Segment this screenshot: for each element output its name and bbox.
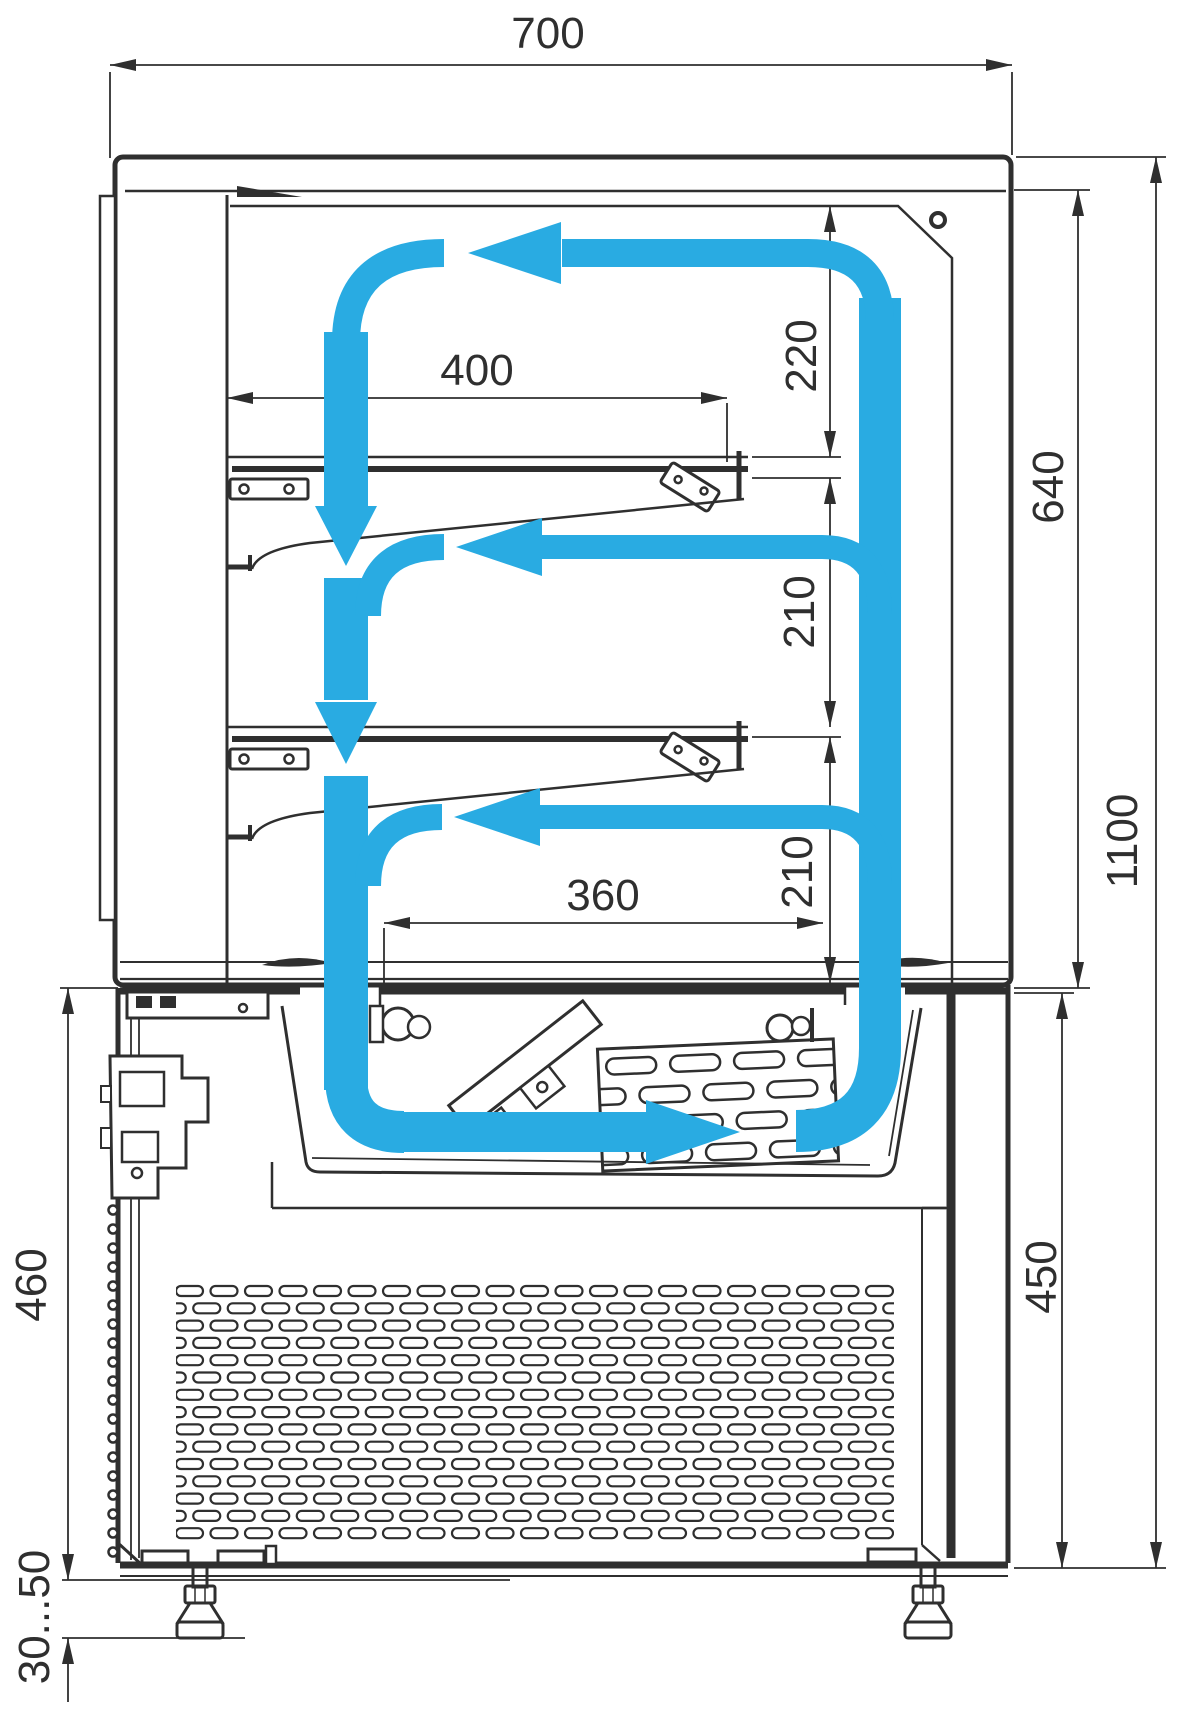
dim-460: 460 [7,988,510,1580]
dim-210-lower: 210 [773,737,836,983]
drawing-canvas: 700 220 210 210 400 [0,0,1177,1711]
dim-400-label: 400 [440,346,513,395]
dim-450-label: 450 [1017,1240,1066,1313]
rear-panel [100,196,115,920]
dim-400: 400 [227,346,727,462]
dim-640-label: 640 [1024,450,1073,523]
corner-screw [931,213,945,227]
dim-220: 220 [752,206,841,737]
dim-360: 360 [384,871,823,983]
airflow-riser-right [796,298,880,1131]
dim-feet-range-label: 30...50 [10,1550,59,1685]
dim-1100: 1100 [1014,157,1166,1568]
airflow-top-run [562,253,880,322]
airflow-branch-1-merge [368,547,444,616]
dim-360-label: 360 [566,871,639,920]
dim-210-lower-label: 210 [773,835,822,908]
display-case-section-drawing: 700 220 210 210 400 [0,0,1177,1711]
airflow-arrowhead-top [468,222,561,284]
dim-210-upper: 210 [775,478,836,727]
dim-700-label: 700 [511,9,584,58]
dim-210-upper-label: 210 [775,575,824,648]
dim-460-label: 460 [7,1248,56,1321]
sill-wedge-left [262,958,332,967]
dim-700: 700 [110,9,1012,158]
dim-1100-label: 1100 [1098,794,1147,889]
dim-220-label: 220 [777,319,826,392]
dim-450: 450 [1014,993,1074,1568]
airflow-arrowhead-down-2 [315,702,377,764]
airflow-left-elbow [346,253,444,342]
airflow-branch-2-merge [368,817,442,886]
airflow-bottom-elbow [346,1076,404,1132]
dim-640: 640 [1014,190,1090,988]
dim-feet-range: 30...50 [10,1550,245,1702]
ventilation-grille [124,1286,910,1538]
